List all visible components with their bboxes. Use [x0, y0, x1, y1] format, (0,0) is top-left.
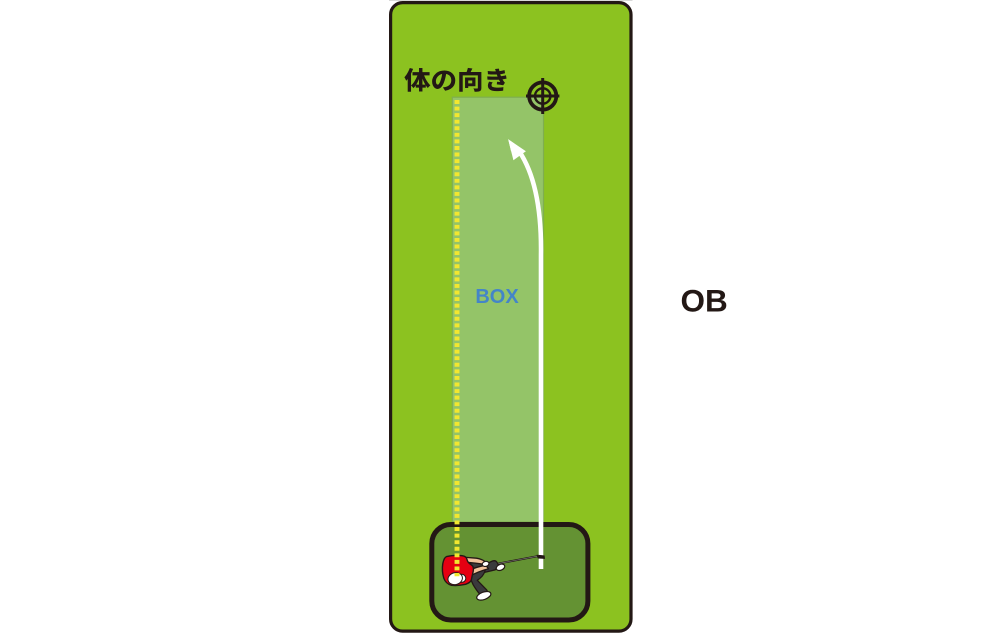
svg-text:BOX: BOX [475, 286, 519, 308]
svg-text:OB: OB [681, 282, 728, 318]
